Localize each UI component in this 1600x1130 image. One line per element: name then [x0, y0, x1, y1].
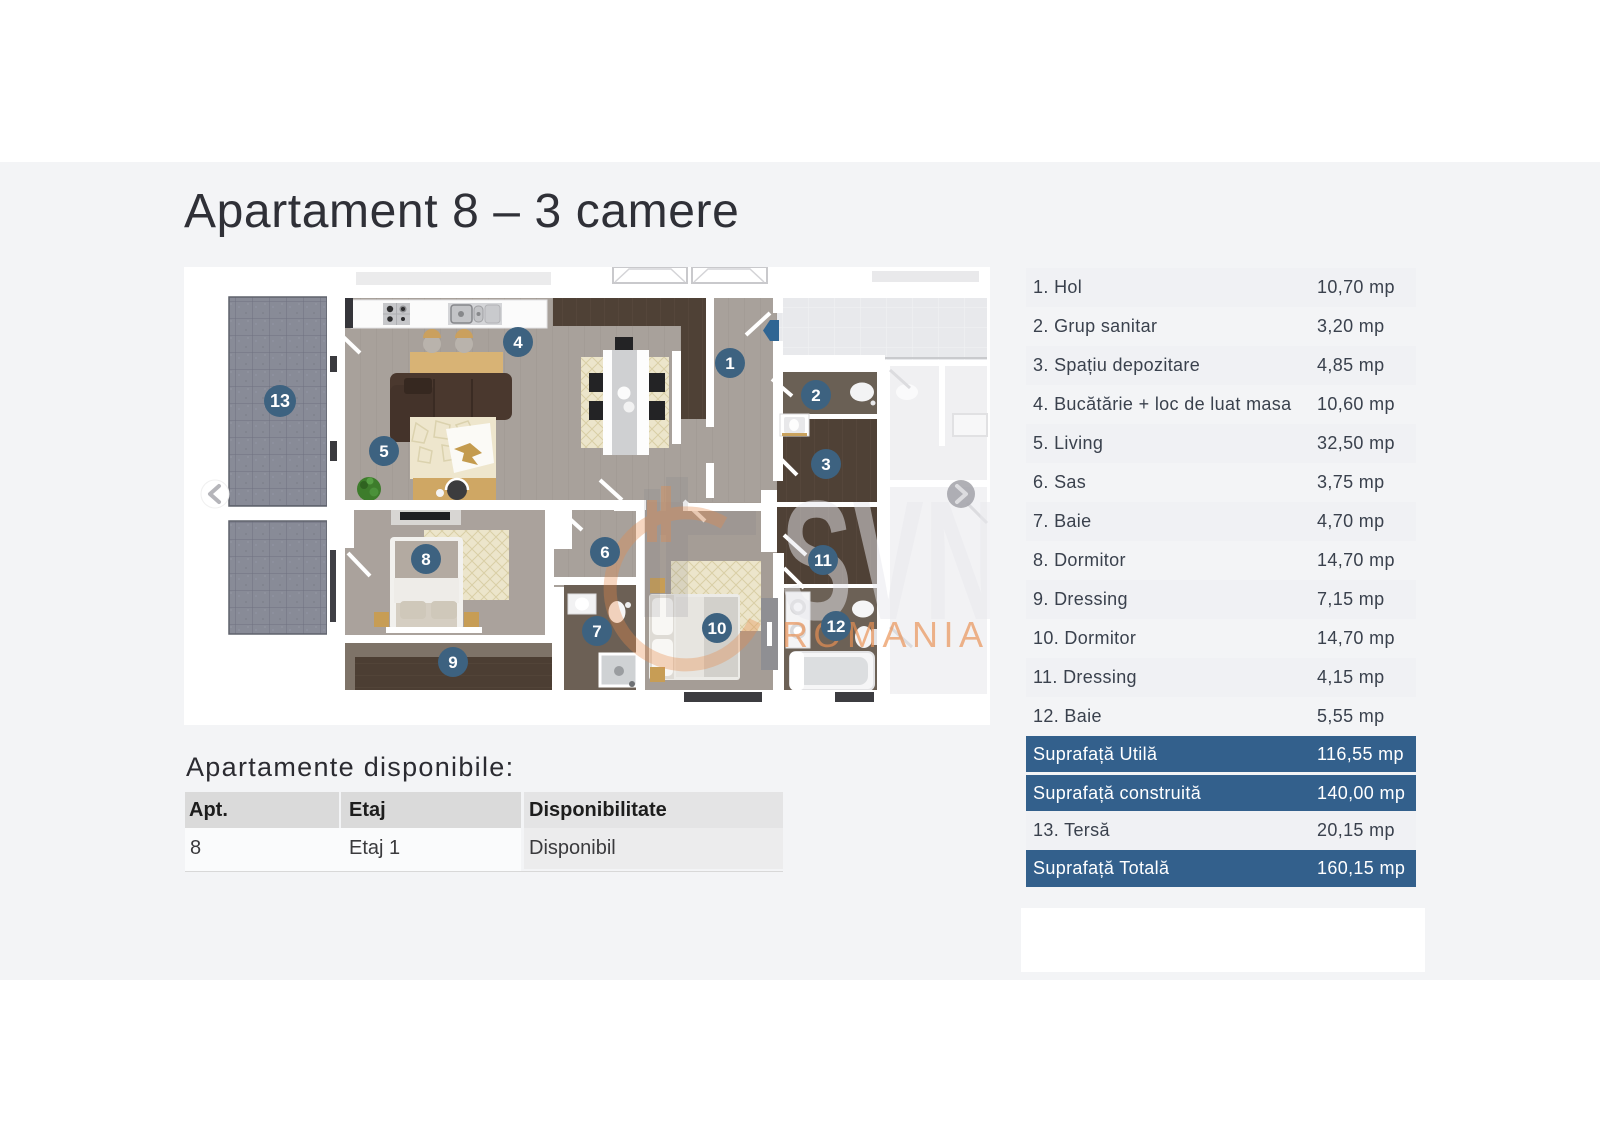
svg-text:9: 9 [448, 653, 457, 672]
svg-text:6: 6 [600, 543, 609, 562]
svg-text:5: 5 [379, 442, 388, 461]
svg-text:10: 10 [708, 619, 727, 638]
svg-text:3: 3 [821, 455, 830, 474]
svg-text:4: 4 [513, 333, 523, 352]
svg-text:13: 13 [270, 391, 290, 411]
svg-text:11: 11 [814, 551, 832, 570]
svg-text:12: 12 [827, 617, 846, 636]
svg-text:2: 2 [811, 386, 820, 405]
svg-text:1: 1 [725, 354, 734, 373]
svg-text:ROMANIA: ROMANIA [782, 614, 989, 655]
svg-text:8: 8 [421, 550, 430, 569]
svg-text:7: 7 [592, 622, 601, 641]
